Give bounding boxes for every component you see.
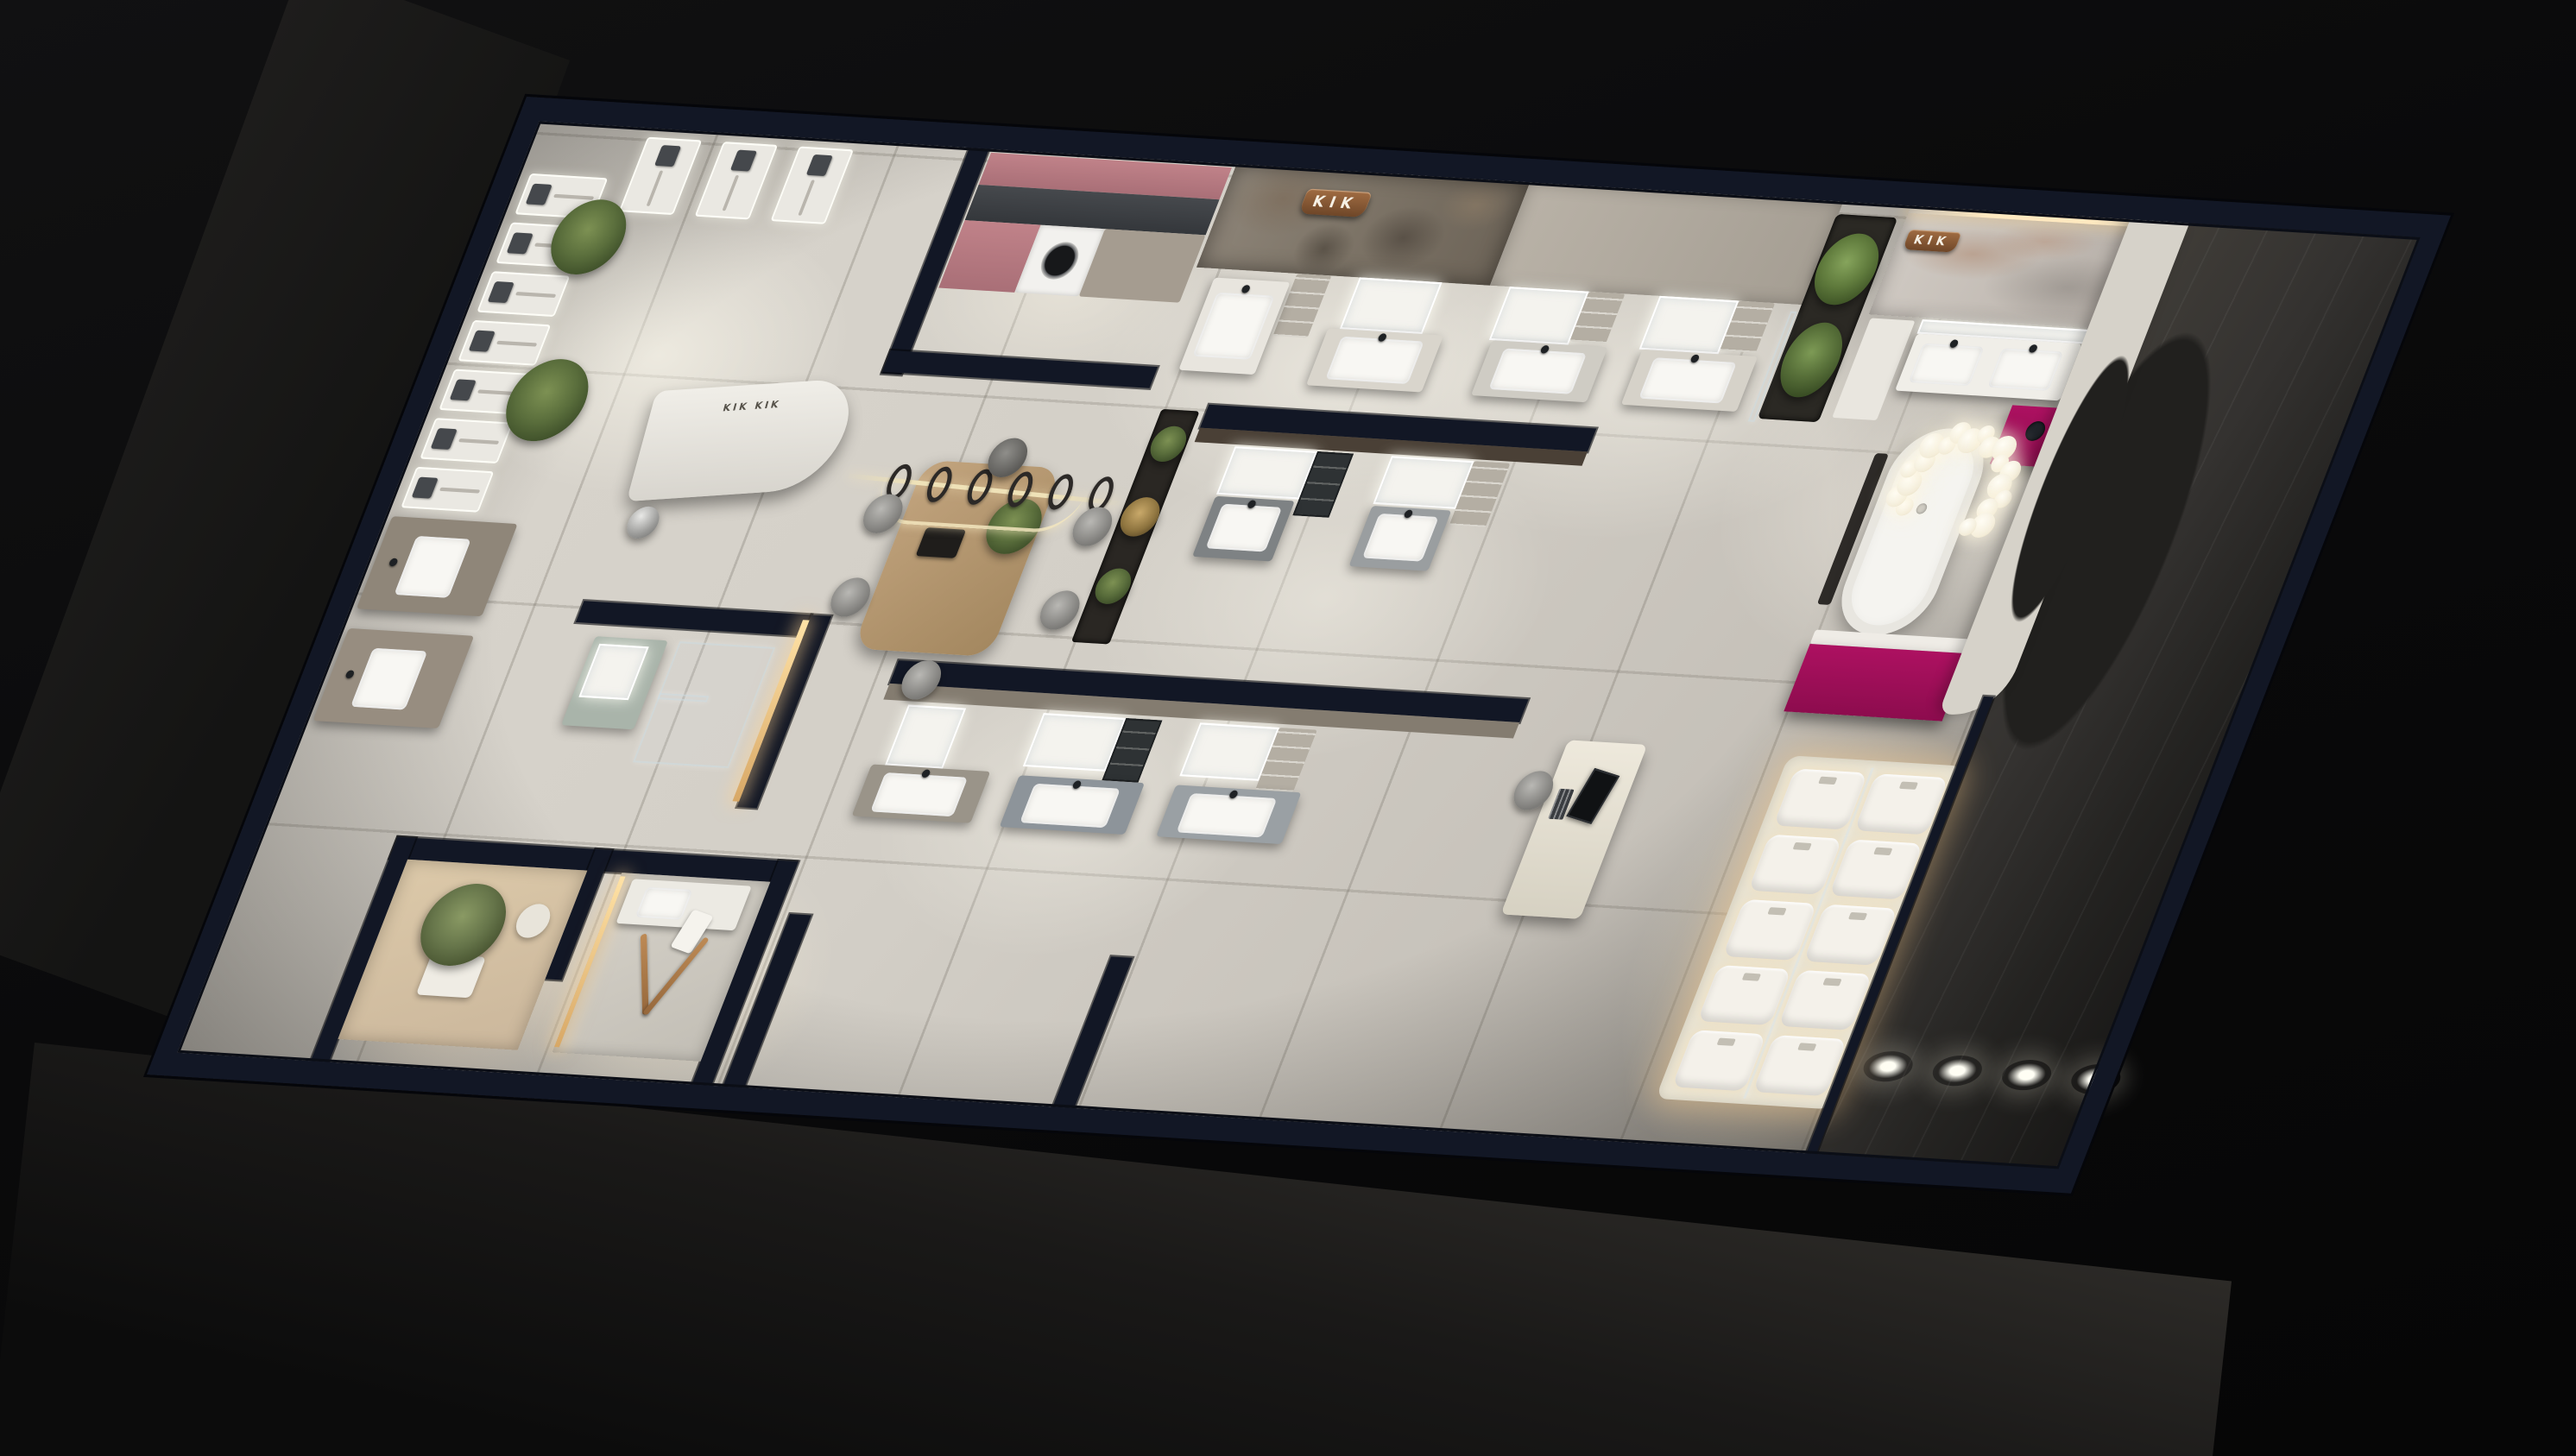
outer-wall-ring xyxy=(147,97,2451,1194)
render-stage: KIK KIK KIK xyxy=(0,0,2576,1456)
showroom-floor-plan: KIK KIK KIK xyxy=(147,97,2451,1194)
